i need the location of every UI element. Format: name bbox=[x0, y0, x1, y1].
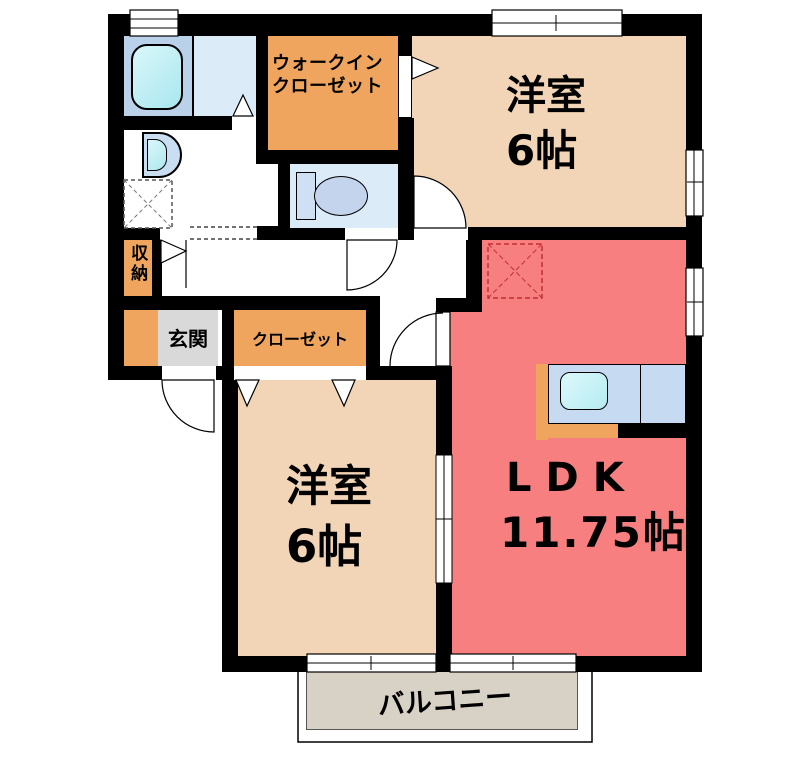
door-opening bbox=[160, 226, 190, 240]
wall-segment bbox=[108, 296, 380, 310]
kitchen-counter-base bbox=[536, 364, 548, 440]
opening-dashed-lines bbox=[190, 227, 257, 239]
washing-machine-pan-cross bbox=[124, 180, 172, 228]
entrance-door-arc bbox=[162, 380, 214, 432]
wall-segment bbox=[122, 226, 160, 240]
toilet-tank bbox=[296, 172, 316, 220]
window-balcony-bedroom-lines bbox=[307, 656, 436, 670]
window-balcony-bedroom bbox=[307, 654, 436, 672]
wall-segment bbox=[366, 310, 380, 368]
toilet-bowl bbox=[314, 176, 368, 216]
bedroom-top-label: 洋室 bbox=[506, 70, 586, 122]
storage-door-wedge bbox=[161, 240, 186, 263]
washing-machine-pan bbox=[124, 180, 172, 228]
shoe-cabinet bbox=[122, 308, 158, 366]
wall-segment bbox=[436, 366, 452, 455]
walk-in-closet-label: ウォークイン クローゼット bbox=[272, 52, 396, 99]
storage-label: 収納 bbox=[126, 244, 148, 284]
door-opening bbox=[414, 227, 468, 240]
wall-segment bbox=[576, 656, 702, 672]
wall-segment bbox=[256, 150, 412, 164]
opening-dashed bbox=[190, 226, 257, 240]
room-bath-washarea bbox=[192, 36, 256, 116]
window-balcony-ldk-lines bbox=[450, 656, 576, 670]
wall-segment bbox=[152, 240, 162, 296]
walk-in-closet-label-line1: ウォークイン bbox=[272, 52, 396, 75]
wall-segment bbox=[257, 226, 290, 240]
wall-segment bbox=[398, 118, 414, 240]
wall-segment bbox=[436, 583, 452, 672]
closet-label: クローゼット bbox=[234, 330, 366, 351]
window-right-ldk bbox=[686, 268, 703, 336]
bedroom-bottom-label: 洋室 bbox=[286, 460, 372, 516]
door-opening bbox=[234, 366, 366, 380]
window-balcony-ldk bbox=[450, 654, 576, 672]
wall-segment bbox=[436, 298, 482, 312]
wall-segment bbox=[686, 215, 702, 270]
ldk-door-arc bbox=[390, 313, 443, 366]
ldk-size: 11.75帖 bbox=[500, 506, 687, 561]
window-right-bedroom bbox=[686, 150, 703, 216]
wall-segment bbox=[398, 14, 412, 55]
entrance-label: 玄関 bbox=[158, 326, 218, 352]
door-opening bbox=[162, 366, 216, 380]
door-opening bbox=[232, 116, 256, 130]
window-right-ldk-lines bbox=[687, 268, 703, 336]
washbasin-bowl bbox=[147, 139, 167, 171]
bedroom-top-size: 6帖 bbox=[506, 124, 577, 179]
ldk-label: LDK bbox=[506, 452, 638, 504]
kitchen-sink bbox=[560, 372, 608, 410]
bathtub bbox=[131, 44, 183, 110]
wall-segment bbox=[618, 424, 686, 438]
room-ldk-upper bbox=[482, 240, 686, 312]
bedroom-bottom-size: 6帖 bbox=[286, 518, 362, 577]
door-opening bbox=[398, 55, 412, 118]
toilet-door-arc bbox=[347, 240, 397, 290]
wall-segment bbox=[222, 366, 238, 672]
wall-segment bbox=[256, 14, 268, 157]
wall-segment bbox=[686, 335, 702, 672]
door-opening bbox=[345, 228, 398, 240]
wall-segment bbox=[122, 116, 232, 130]
wall-segment bbox=[222, 310, 234, 368]
window-right-bedroom-lines bbox=[687, 150, 703, 216]
floor-plan: ウォークイン クローゼット 収納 玄関 クローゼット 洋室 6帖 洋室 6帖 L… bbox=[0, 0, 800, 769]
wall-segment bbox=[108, 14, 124, 380]
wall-segment bbox=[468, 227, 686, 240]
wall-segment bbox=[108, 366, 162, 380]
kitchen-counter-base bbox=[548, 424, 618, 438]
kitchen-counter-divider bbox=[640, 364, 641, 424]
walk-in-closet-label-line2: クローゼット bbox=[272, 75, 396, 98]
ldk-door-leaf bbox=[436, 312, 450, 366]
wall-segment bbox=[686, 14, 702, 152]
